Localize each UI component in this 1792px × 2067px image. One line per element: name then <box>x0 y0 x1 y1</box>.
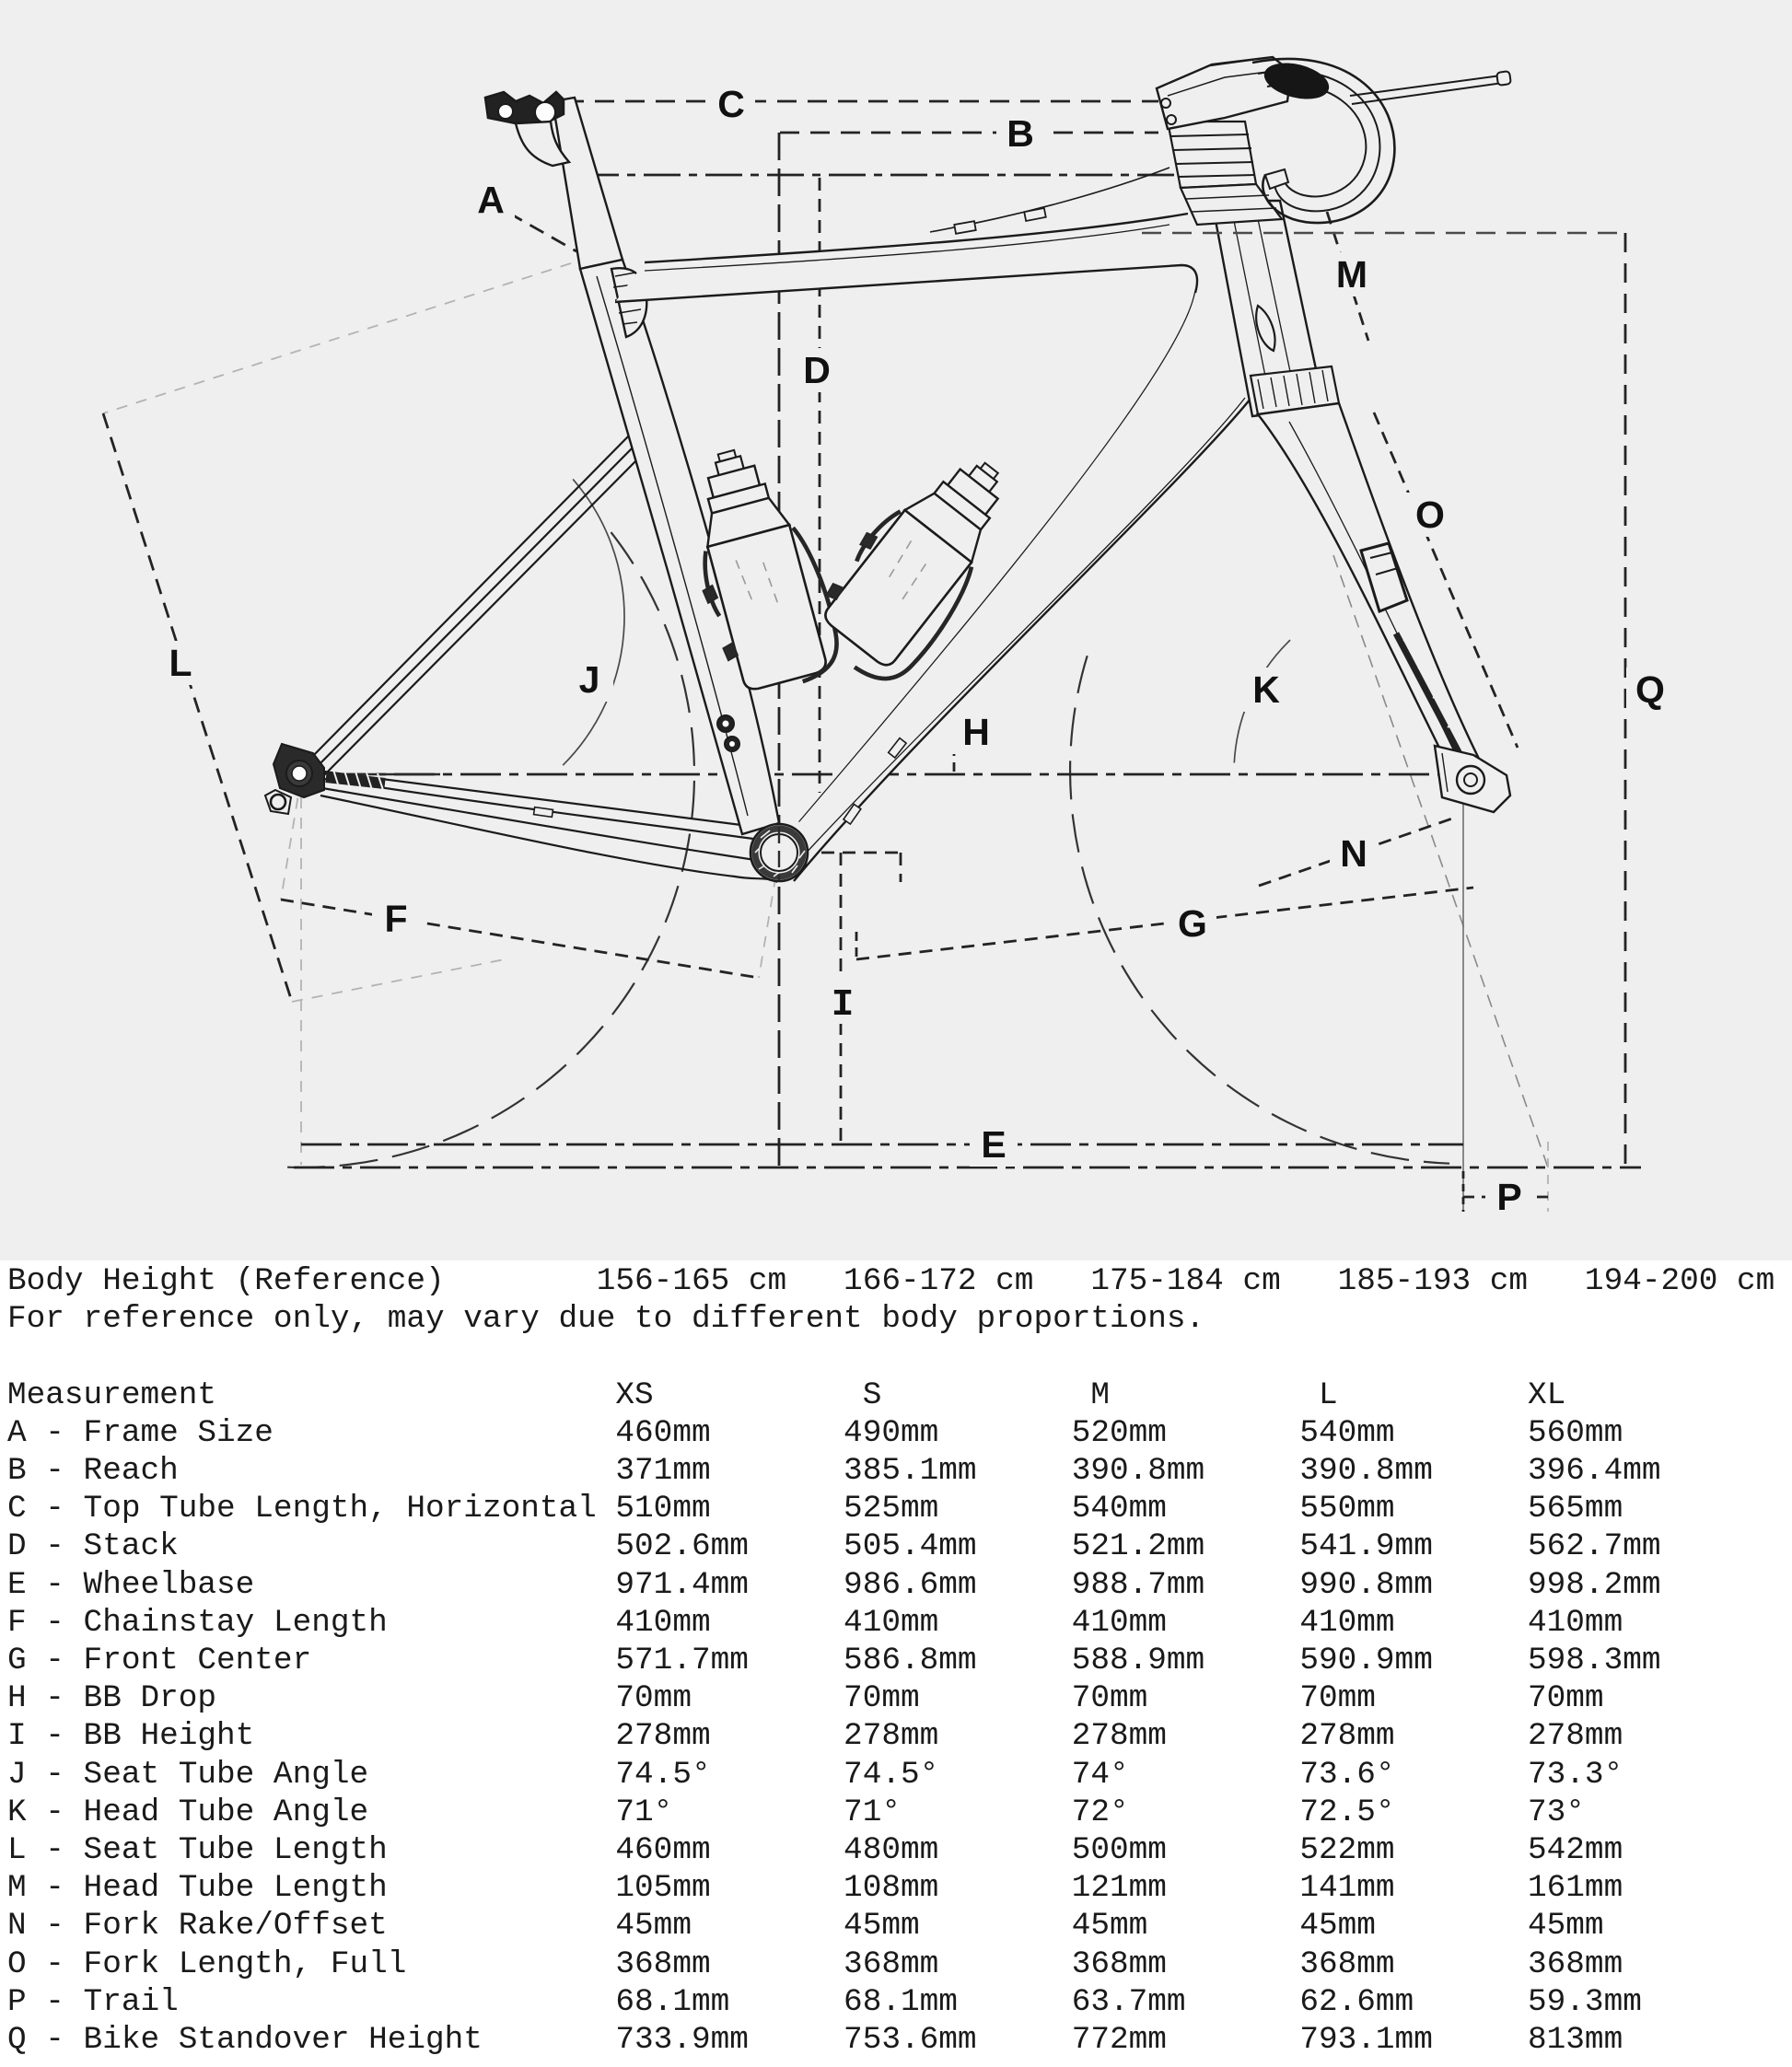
svg-text:B: B <box>1007 112 1034 155</box>
svg-text:L: L <box>169 642 192 684</box>
svg-text:C: C <box>717 83 745 125</box>
svg-text:D: D <box>803 349 831 391</box>
svg-text:G: G <box>1178 902 1207 945</box>
svg-text:E: E <box>981 1123 1006 1166</box>
svg-text:F: F <box>384 898 407 940</box>
svg-text:A: A <box>477 179 505 221</box>
svg-text:P: P <box>1496 1176 1521 1218</box>
svg-text:N: N <box>1340 832 1367 875</box>
svg-text:M: M <box>1336 253 1367 296</box>
svg-text:H: H <box>962 711 990 753</box>
svg-text:K: K <box>1252 668 1280 711</box>
svg-text:Q: Q <box>1635 668 1665 711</box>
svg-text:J: J <box>579 658 600 701</box>
svg-text:I: I <box>832 984 855 1027</box>
svg-text:O: O <box>1415 494 1445 536</box>
